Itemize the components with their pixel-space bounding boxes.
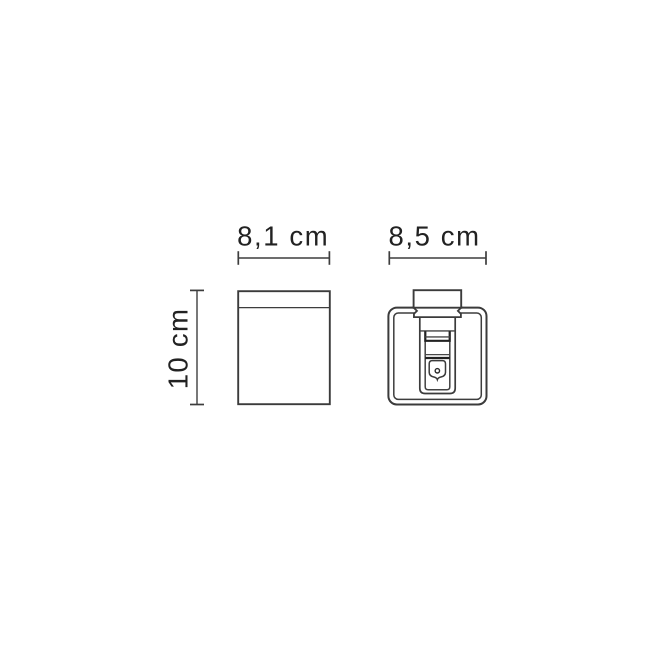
svg-text:8,5 cm: 8,5 cm — [389, 220, 481, 251]
svg-text:8,1 cm: 8,1 cm — [237, 220, 329, 251]
svg-text:10 cm: 10 cm — [163, 308, 194, 389]
